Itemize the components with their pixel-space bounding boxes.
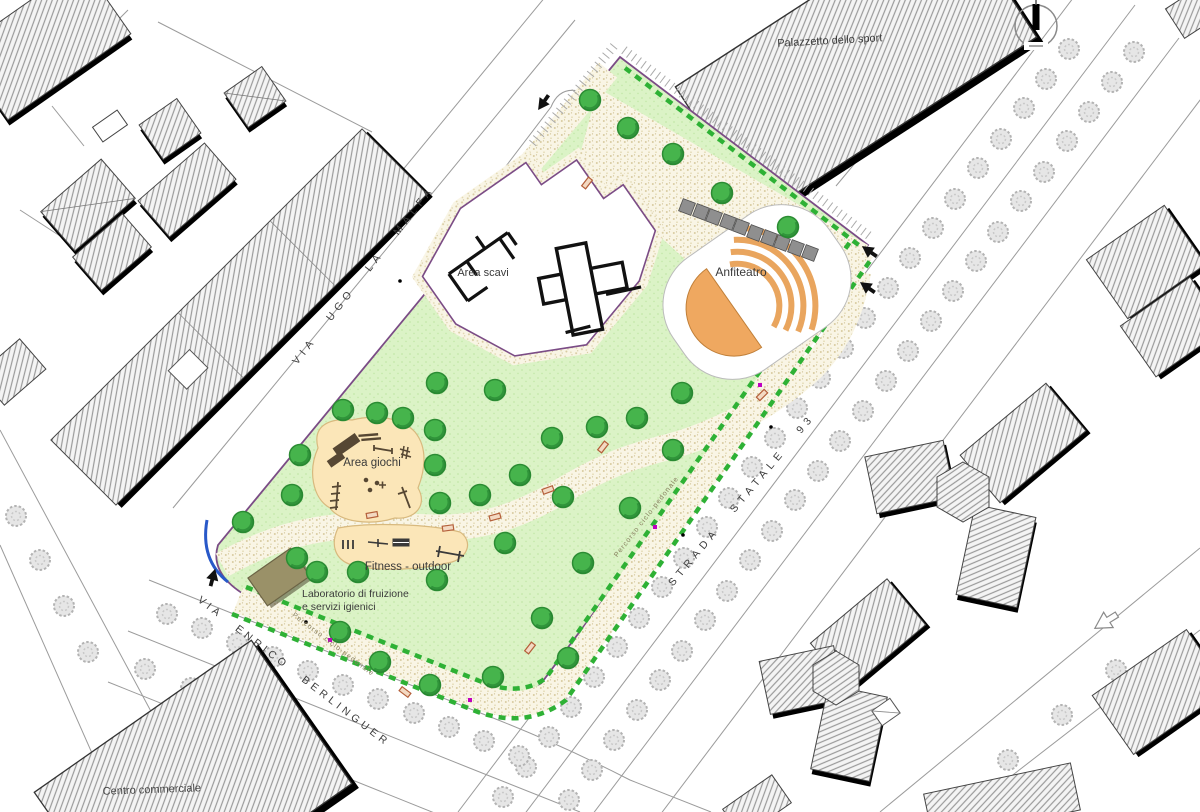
anfiteatro-label: Anfiteatro <box>715 265 767 279</box>
site-plan-page: Palazzetto dello sport Area scavi Anfite… <box>0 0 1200 812</box>
playground-zone <box>313 417 424 522</box>
laboratorio-label-line1: Laboratorio di fruizione <box>302 588 409 600</box>
entrance-arrow-icon <box>533 92 553 114</box>
area-giochi-label: Area giochi <box>343 457 401 469</box>
entrance-arrow-icon <box>205 567 222 588</box>
site-plan-map: Palazzetto dello sport Area scavi Anfite… <box>0 0 1200 812</box>
area-scavi-label: Area scavi <box>457 267 508 279</box>
road-direction-arrow-icon <box>1090 607 1122 636</box>
laboratorio-label-line2: e servizi igienici <box>302 601 376 613</box>
fitness-label: Fitness - outdoor <box>365 561 451 573</box>
